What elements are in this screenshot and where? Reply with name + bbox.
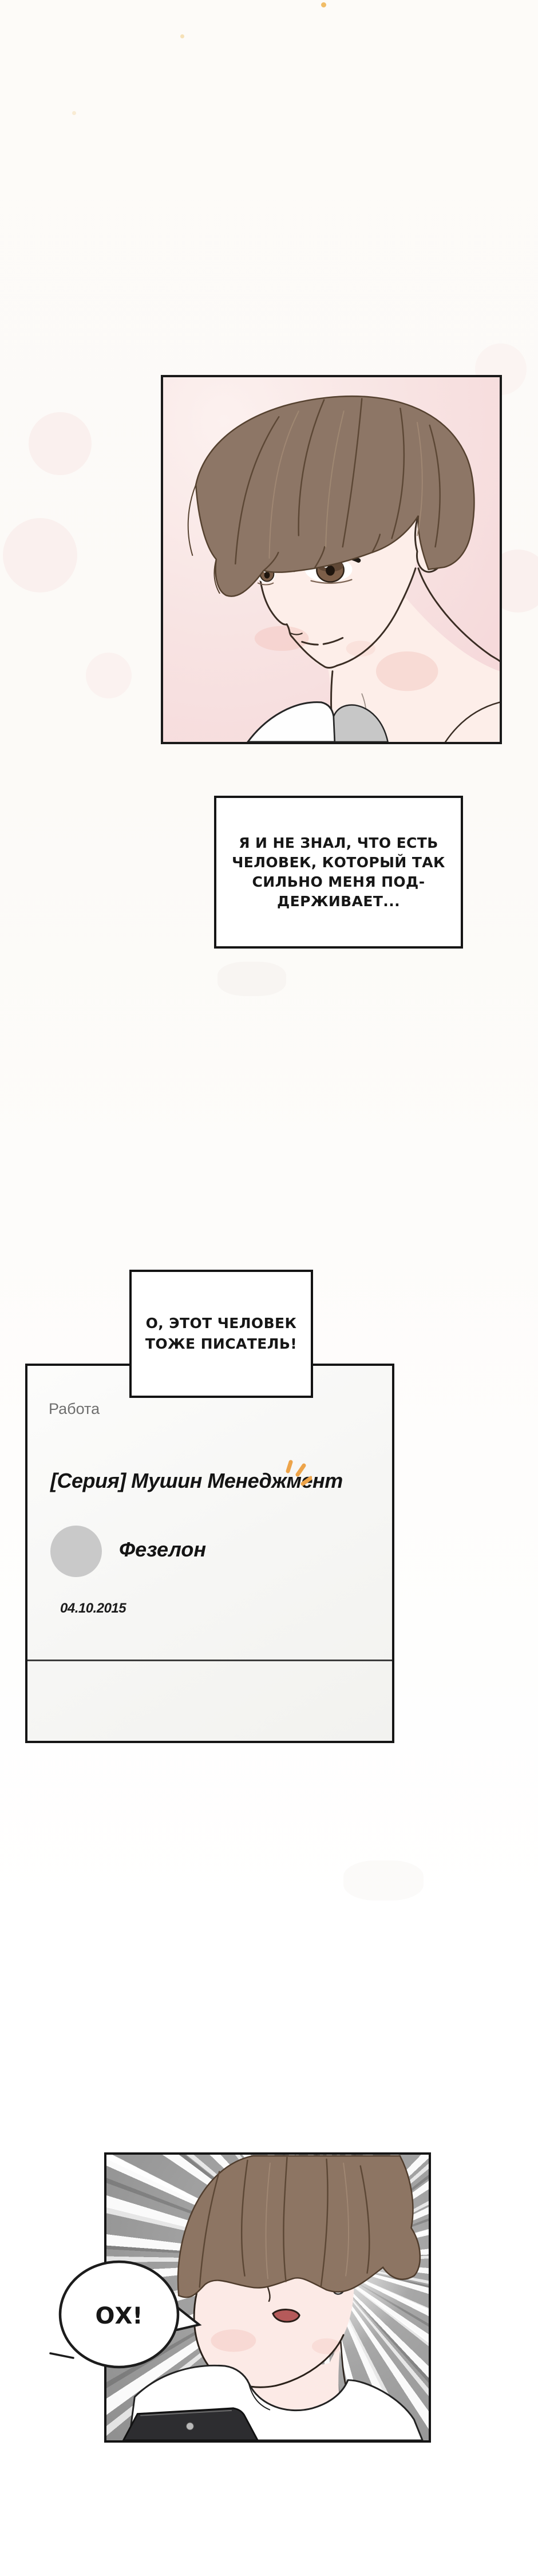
narration-box: Я И НЕ ЗНАЛ, ЧТО ЕСТЬ ЧЕЛОВЕК, КОТОРЫЙ Т… [214,796,463,949]
phone [124,2408,258,2440]
narration-line: Я И НЕ ЗНАЛ, ЧТО ЕСТЬ [239,833,438,853]
decor-bokeh [217,962,286,996]
exclamation-bubble: ОХ! [49,2257,207,2376]
decor-dot [321,2,326,7]
narration-line: СИЛЬНО МЕНЯ ПОД- [252,872,425,892]
portrait-illustration [163,377,500,742]
phone-camera [187,2423,194,2430]
exclamation-text: ОХ! [95,2303,143,2329]
speech-line: ТОЖЕ ПИСАТЕЛЬ! [145,1334,297,1354]
avatar [50,1526,102,1577]
blog-category-label: Работа [49,1400,100,1418]
speech-line: О, ЭТОТ ЧЕЛОВЕК [146,1313,297,1334]
decor-bokeh [29,412,92,475]
decor-bokeh [86,653,132,698]
hair [178,2156,420,2297]
blog-post-date: 04.10.2015 [60,1601,126,1617]
decor-dot [180,34,184,38]
narration-line: ЧЕЛОВЕК, КОТОРЫЙ ТАК [232,853,445,872]
panel-portrait [161,375,502,744]
divider [27,1660,392,1661]
webtoon-page: Я И НЕ ЗНАЛ, ЧТО ЕСТЬ ЧЕЛОВЕК, КОТОРЫЙ Т… [0,0,538,2576]
narration-line: ДЕРЖИВАЕТ... [277,892,400,911]
stray-speed-line [50,2353,73,2358]
decor-bokeh [343,1860,424,1901]
decor-dot [72,111,76,115]
blog-author-name: Фезелон [119,1538,206,1562]
speech-bubble: О, ЭТОТ ЧЕЛОВЕК ТОЖЕ ПИСАТЕЛЬ! [129,1270,313,1398]
sparkle-icon [282,1457,312,1487]
blog-screenshot-panel: Работа [Серия] Мушин Менеджмент Фезелон … [25,1364,394,1743]
decor-bokeh [3,518,77,592]
